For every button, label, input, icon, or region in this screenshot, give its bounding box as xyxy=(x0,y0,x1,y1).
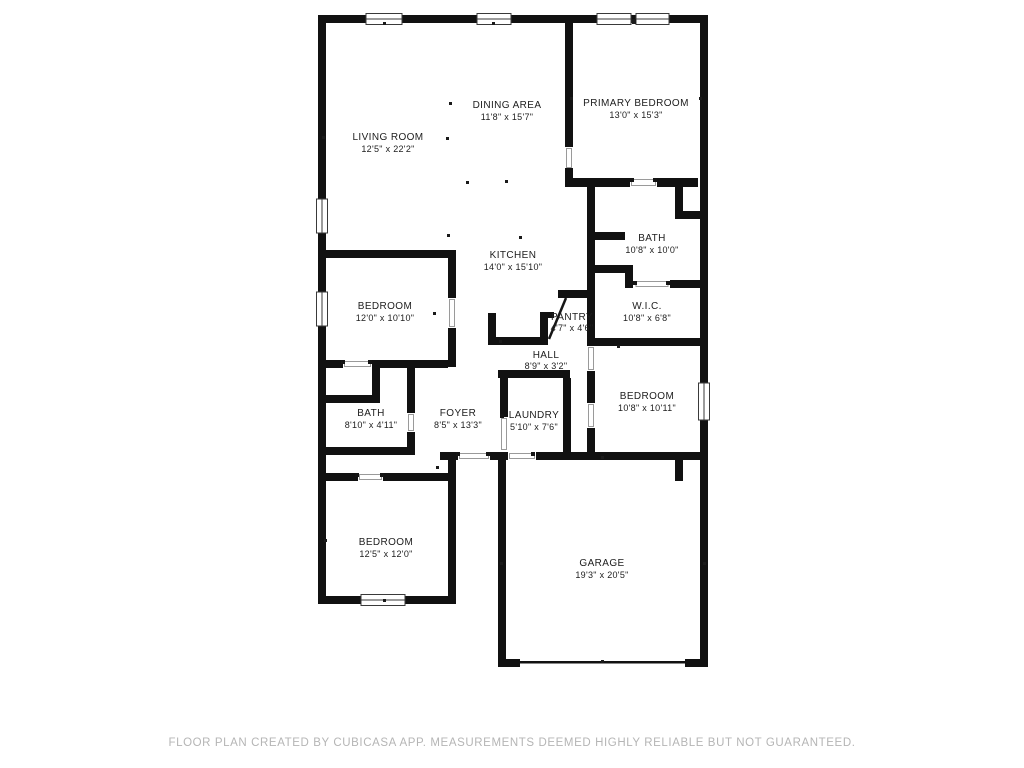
svg-text:5'10" x 7'6": 5'10" x 7'6" xyxy=(510,422,558,432)
door-wic xyxy=(636,282,668,287)
floor-plan-canvas: LIVING ROOM 12'5" x 22'2" DINING AREA 11… xyxy=(0,0,1024,768)
svg-text:FOYER: FOYER xyxy=(440,408,476,419)
wall xyxy=(657,178,698,187)
door-garage-entry xyxy=(510,454,535,459)
wall xyxy=(563,378,571,452)
svg-text:PANTRY: PANTRY xyxy=(551,312,593,323)
wall xyxy=(595,232,625,240)
room-label-foyer: FOYER 8'5" x 13'3" xyxy=(434,408,482,430)
svg-text:PRIMARY BEDROOM: PRIMARY BEDROOM xyxy=(583,98,689,109)
wall xyxy=(407,432,415,455)
wall xyxy=(536,452,702,460)
wall xyxy=(440,452,458,460)
wall xyxy=(318,473,358,481)
svg-text:BEDROOM: BEDROOM xyxy=(620,391,674,402)
svg-text:HALL: HALL xyxy=(533,350,560,361)
wall xyxy=(565,23,573,147)
wall xyxy=(685,659,708,667)
svg-text:19'3" x 20'5": 19'3" x 20'5" xyxy=(575,570,628,580)
wall xyxy=(448,328,456,367)
svg-text:GARAGE: GARAGE xyxy=(579,558,624,569)
svg-text:11'8" x 15'7": 11'8" x 15'7" xyxy=(481,112,534,122)
door-front-entry xyxy=(460,454,489,459)
door-laundry xyxy=(502,419,507,450)
wall xyxy=(587,371,595,403)
room-label-bath-primary: BATH 10'8" x 10'0" xyxy=(625,233,678,255)
svg-text:8'10" x 4'11": 8'10" x 4'11" xyxy=(345,420,398,430)
room-label-bedroom-south: BEDROOM 12'5" x 12'0" xyxy=(359,537,413,559)
room-label-kitchen: KITCHEN 14'0" x 15'10" xyxy=(484,250,543,272)
svg-text:12'5" x 22'2": 12'5" x 22'2" xyxy=(361,144,414,154)
door-primary-bedroom xyxy=(567,149,572,168)
room-label-laundry: LAUNDRY 5'10" x 7'6" xyxy=(509,410,559,432)
footer-disclaimer: FLOOR PLAN CREATED BY CUBICASA APP. MEAS… xyxy=(168,737,855,749)
svg-text:KITCHEN: KITCHEN xyxy=(490,250,537,261)
svg-text:8'9" x 3'2": 8'9" x 3'2" xyxy=(525,361,568,371)
svg-text:BATH: BATH xyxy=(638,233,666,244)
floor-plan-page: LIVING ROOM 12'5" x 22'2" DINING AREA 11… xyxy=(0,0,1024,768)
wall xyxy=(675,211,708,219)
svg-text:DINING AREA: DINING AREA xyxy=(473,100,542,111)
svg-text:4'7" x 4'6": 4'7" x 4'6" xyxy=(551,323,594,333)
room-label-garage: GARAGE 19'3" x 20'5" xyxy=(575,558,628,580)
wall xyxy=(318,250,448,258)
door-bedroom-west xyxy=(450,300,455,327)
svg-text:10'8" x 6'8": 10'8" x 6'8" xyxy=(623,313,671,323)
wall xyxy=(625,265,633,288)
wall xyxy=(595,338,708,346)
room-label-living-room: LIVING ROOM 12'5" x 22'2" xyxy=(352,132,423,154)
door-closet-east xyxy=(589,405,594,427)
svg-text:BEDROOM: BEDROOM xyxy=(359,537,413,548)
svg-text:LAUNDRY: LAUNDRY xyxy=(509,410,559,421)
wall xyxy=(383,473,448,481)
wall xyxy=(407,368,415,413)
svg-text:8'5" x 13'3": 8'5" x 13'3" xyxy=(434,420,482,430)
room-label-bath-hall: BATH 8'10" x 4'11" xyxy=(345,408,398,430)
room-label-hall: HALL 8'9" x 3'2" xyxy=(525,350,568,371)
door-bedroom-south xyxy=(360,475,382,480)
wall xyxy=(500,378,508,417)
room-label-pantry: PANTRY 4'7" x 4'6" xyxy=(551,312,594,333)
svg-text:W.I.C.: W.I.C. xyxy=(632,301,662,312)
wall xyxy=(488,313,496,337)
wall xyxy=(323,447,415,455)
wall xyxy=(372,360,448,368)
wall xyxy=(565,178,630,187)
svg-text:BATH: BATH xyxy=(357,408,385,419)
room-label-wic: W.I.C. 10'8" x 6'8" xyxy=(623,301,671,323)
svg-text:14'0" x 15'10": 14'0" x 15'10" xyxy=(484,262,543,272)
wall xyxy=(318,360,343,368)
room-label-dining-area: DINING AREA 11'8" x 15'7" xyxy=(473,100,542,122)
door-closet-west xyxy=(345,362,371,367)
wall xyxy=(372,367,380,403)
wall xyxy=(323,395,380,403)
svg-text:12'5" x 12'0": 12'5" x 12'0" xyxy=(359,549,412,559)
svg-text:LIVING ROOM: LIVING ROOM xyxy=(352,132,423,143)
door-primary-bath xyxy=(632,180,656,186)
svg-text:10'8" x 10'11": 10'8" x 10'11" xyxy=(618,403,676,413)
svg-text:13'0" x 15'3": 13'0" x 15'3" xyxy=(609,110,662,120)
wall xyxy=(558,290,595,298)
svg-text:BEDROOM: BEDROOM xyxy=(358,301,412,312)
door-bedroom-east xyxy=(589,348,594,370)
wall xyxy=(498,370,570,378)
svg-text:12'0" x 10'10": 12'0" x 10'10" xyxy=(356,313,415,323)
door-bath-hall xyxy=(409,415,414,431)
room-label-primary-bedroom: PRIMARY BEDROOM 13'0" x 15'3" xyxy=(583,98,689,120)
wall xyxy=(488,337,548,345)
wall xyxy=(675,460,683,481)
svg-text:10'8" x 10'0": 10'8" x 10'0" xyxy=(625,245,678,255)
wall xyxy=(448,452,456,604)
wall xyxy=(448,250,456,298)
wall xyxy=(490,452,508,460)
room-label-bedroom-east: BEDROOM 10'8" x 10'11" xyxy=(618,391,676,413)
wall xyxy=(670,280,708,288)
room-label-bedroom-west: BEDROOM 12'0" x 10'10" xyxy=(356,301,415,323)
wall xyxy=(587,428,595,452)
